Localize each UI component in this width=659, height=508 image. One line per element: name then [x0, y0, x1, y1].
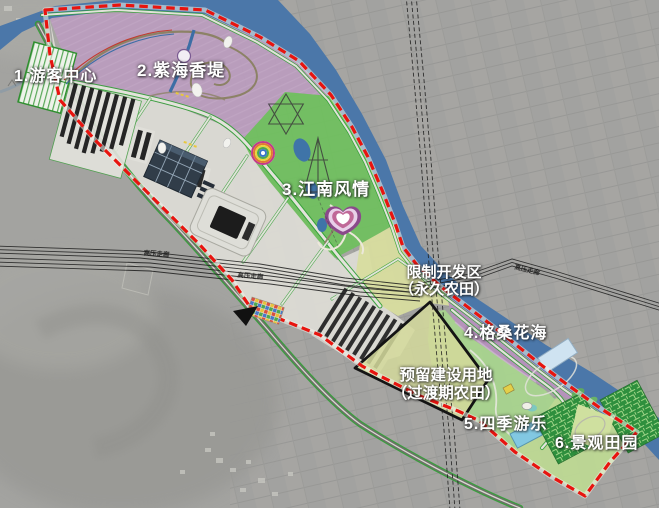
map-graphics: [0, 0, 659, 508]
site-plan-map: 1.游客中心 2.紫海香堤 3.江南风情 4.格桑花海 5.四季游乐 6.景观田…: [0, 0, 659, 508]
rainbow-spiral: [251, 141, 275, 165]
oval-track: [522, 403, 532, 410]
canal-node: [178, 50, 191, 63]
